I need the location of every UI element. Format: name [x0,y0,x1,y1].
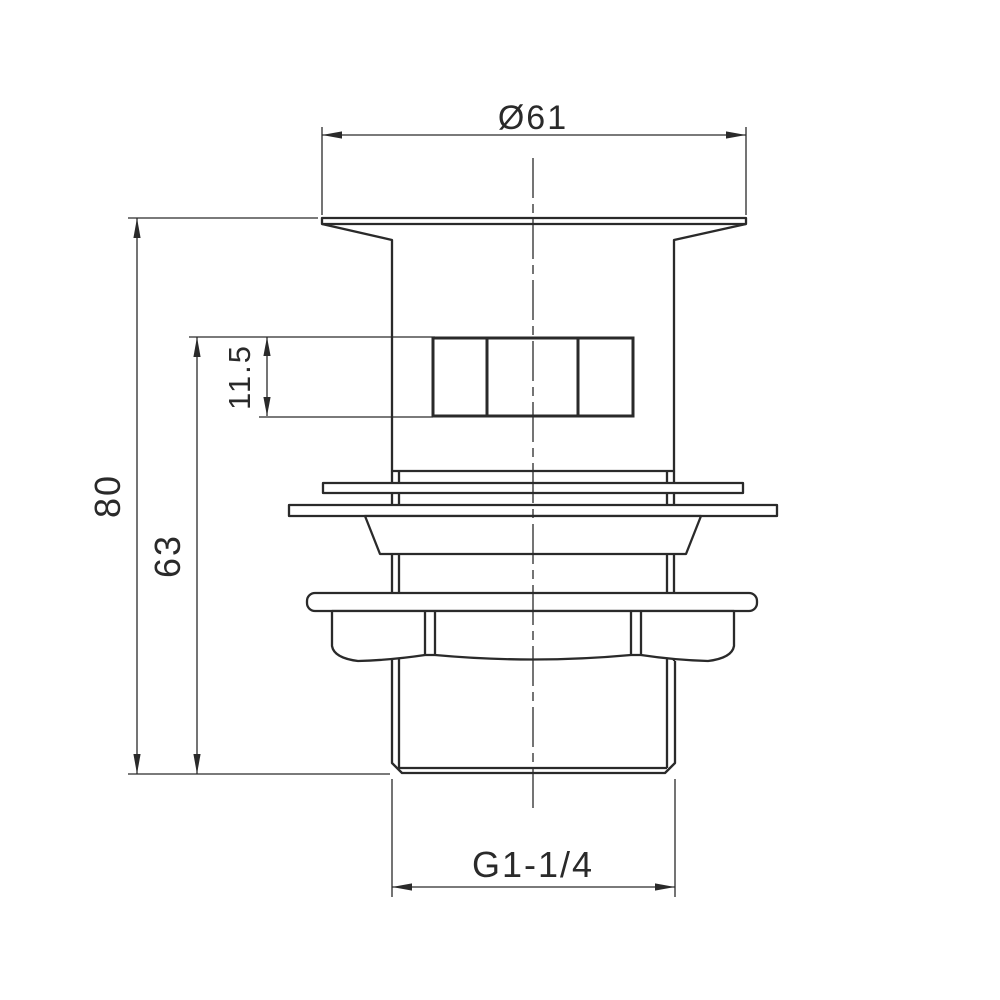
arrowhead-top [133,218,140,238]
arrowhead-right [655,883,675,890]
dim-label-body-height: 63 [147,534,188,578]
arrowhead-right [726,131,746,138]
arrowhead-bottom [133,754,140,774]
arrowhead-bottom [193,754,200,774]
backnut-flange-plate [307,593,757,611]
arrowhead-left [322,131,342,138]
arrowhead-left [392,883,412,890]
arrowhead-top [193,337,200,357]
basin-waste-technical-drawing: Ø61 80 63 11.5 [0,0,1000,1000]
dim-label-top-diameter: Ø61 [498,99,568,137]
arrowhead-top [263,337,270,356]
dim-overall-height: 80 [87,218,390,774]
dim-top-diameter: Ø61 [322,99,746,215]
technical-drawing-page: Ø61 80 63 11.5 [0,0,1000,1000]
arrowhead-bottom [263,397,270,416]
dim-label-slot-height: 11.5 [222,344,257,410]
dim-label-overall-height: 80 [87,474,128,518]
dim-label-thread-size: G1-1/4 [472,844,594,885]
